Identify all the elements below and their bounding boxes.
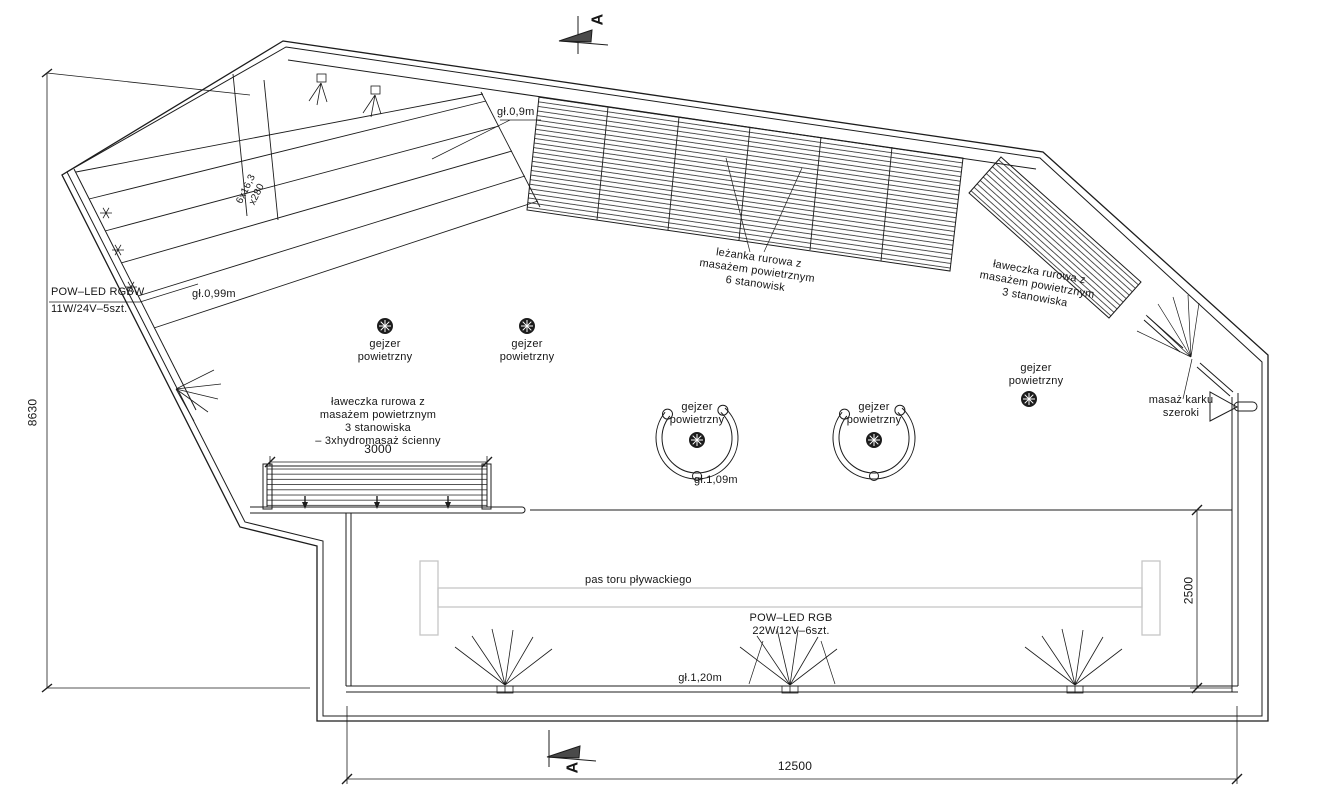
dim-3000: 3000	[348, 443, 408, 456]
dim-2500: 2500	[1183, 571, 1196, 611]
dim-8630: 8630	[27, 393, 40, 433]
geyser-label-2: gejzer powietrzny	[487, 338, 567, 364]
pool-floor-plan: gł.0,9m gł.0,99m gł.1,09m gł.1,20m 6x16,…	[0, 0, 1342, 801]
stairs	[76, 74, 540, 328]
depth-label-0-99: gł.0,99m	[192, 288, 236, 301]
dim-12500: 12500	[763, 760, 827, 773]
neck-massage-label: masaż karku szeroki	[1131, 394, 1231, 420]
depth-label-1-09: gł.1,09m	[694, 474, 738, 487]
led-rgbw-label: POW–LED RGBW 11W/24V–5szt.	[51, 284, 144, 318]
geyser-label-1: gejzer powietrzny	[345, 338, 425, 364]
geyser-label-3: gejzer powietrzny	[996, 362, 1076, 388]
depth-label-0-9: gł.0,9m	[497, 106, 534, 119]
geyser-label-4: gejzer powietrzny	[657, 401, 737, 427]
strip-lamp-icons	[100, 208, 137, 292]
bench-left-label: ławeczka rurowa z masażem powietrznym 3 …	[283, 396, 473, 448]
section-letter-bottom: A	[566, 762, 579, 774]
swim-lane-label: pas toru pływackiego	[585, 574, 692, 587]
geyser-label-5: gejzer powietrzny	[834, 401, 914, 427]
lounger-area	[527, 97, 963, 271]
air-geyser-symbols	[378, 319, 1037, 448]
bench-left-area	[263, 464, 491, 509]
bottom-lights	[455, 629, 1122, 693]
depth-label-1-20: gł.1,20m	[650, 672, 722, 685]
section-letter-top: A	[591, 14, 604, 26]
led-rgb-label: POW–LED RGB 22W/12V–6szt.	[726, 612, 856, 638]
